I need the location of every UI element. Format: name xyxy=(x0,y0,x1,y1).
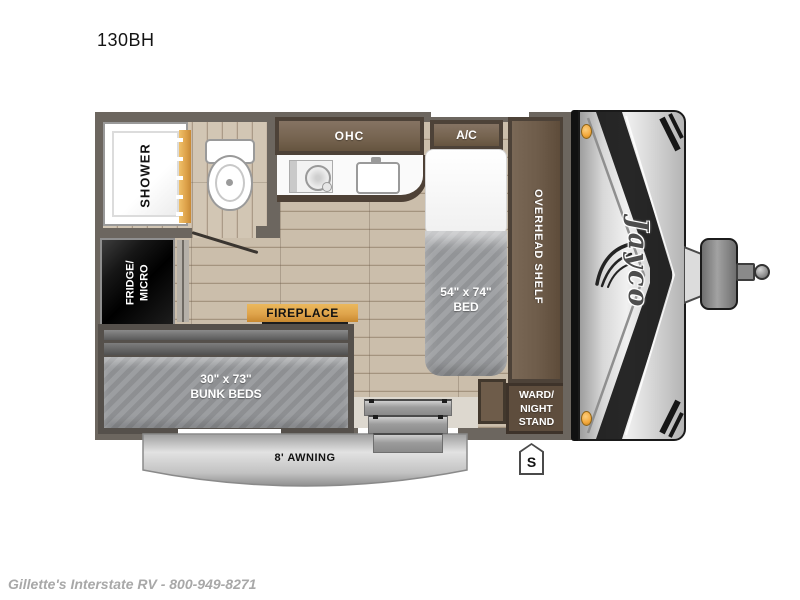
curtain-hook xyxy=(176,157,183,161)
curtain-hook xyxy=(176,176,183,180)
curtain-hook xyxy=(176,212,183,216)
entry-step xyxy=(368,415,448,434)
bathroom-wall-end xyxy=(256,226,280,238)
stabilizer-badge: S xyxy=(519,443,544,475)
page-title: 130BH xyxy=(97,30,155,51)
fireplace-label: FIREPLACE xyxy=(247,304,358,322)
bed-foot-cabinet xyxy=(478,379,506,424)
fridge-micro-label: FRIDGE/ MICRO xyxy=(124,241,152,325)
overhead-shelf-cabinet: OVERHEAD SHELF xyxy=(508,117,564,383)
floorplan-page: 130BH SHOWER FRIDGE/ MICRO OHC A/C xyxy=(0,0,800,600)
entry-step xyxy=(364,399,452,416)
marker-light-bottom xyxy=(581,411,592,426)
wardrobe-label: WARD/ NIGHT STAND xyxy=(509,389,564,430)
step-bracket xyxy=(438,415,443,419)
step-bracket xyxy=(442,399,447,403)
fridge-side-panel xyxy=(177,240,189,322)
shower-label: SHOWER xyxy=(138,128,153,224)
bunk-beds: 30" x 73" BUNK BEDS xyxy=(98,324,354,434)
ac-unit: A/C xyxy=(430,120,503,150)
kitchen-sink xyxy=(356,162,400,194)
toilet-bowl xyxy=(207,155,253,211)
overhead-shelf-label: OVERHEAD SHELF xyxy=(530,189,544,304)
hitch-coupler xyxy=(736,263,755,281)
bunk-second-rail xyxy=(104,343,348,355)
toilet-flush xyxy=(226,179,233,186)
overhead-cabinet: OHC xyxy=(275,117,424,155)
wardrobe-nightstand: WARD/ NIGHT STAND xyxy=(506,383,567,434)
stabilizer-symbol: S xyxy=(521,445,542,473)
stove-cooktop xyxy=(289,160,333,193)
propane-tank-cover xyxy=(700,238,738,310)
bunk-top-rail xyxy=(104,330,348,340)
bed: 54" x 74" BED xyxy=(425,147,507,376)
curtain-hook xyxy=(176,195,183,199)
curtain-hook xyxy=(176,138,183,142)
jayco-logo: Jayco xyxy=(622,218,653,342)
step-bracket xyxy=(369,399,374,403)
bunk-label: 30" x 73" BUNK BEDS xyxy=(98,372,354,402)
bed-pillow xyxy=(425,149,507,235)
awning-label: 8' AWNING xyxy=(240,452,370,464)
stove-burner-small xyxy=(322,182,332,192)
fridge-micro-appliance: FRIDGE/ MICRO xyxy=(100,238,175,327)
dealer-footer: Gillette's Interstate RV - 800-949-8271 xyxy=(8,576,256,592)
bed-label: 54" x 74" BED xyxy=(425,285,507,315)
marker-light-top xyxy=(581,124,592,139)
stove-knob-panel xyxy=(290,161,297,192)
step-bracket xyxy=(373,415,378,419)
entry-step xyxy=(373,433,443,453)
hitch-ball xyxy=(754,264,770,280)
ac-label: A/C xyxy=(430,128,503,143)
ohc-label: OHC xyxy=(275,129,424,144)
bathroom-wall-bottom xyxy=(95,228,192,238)
